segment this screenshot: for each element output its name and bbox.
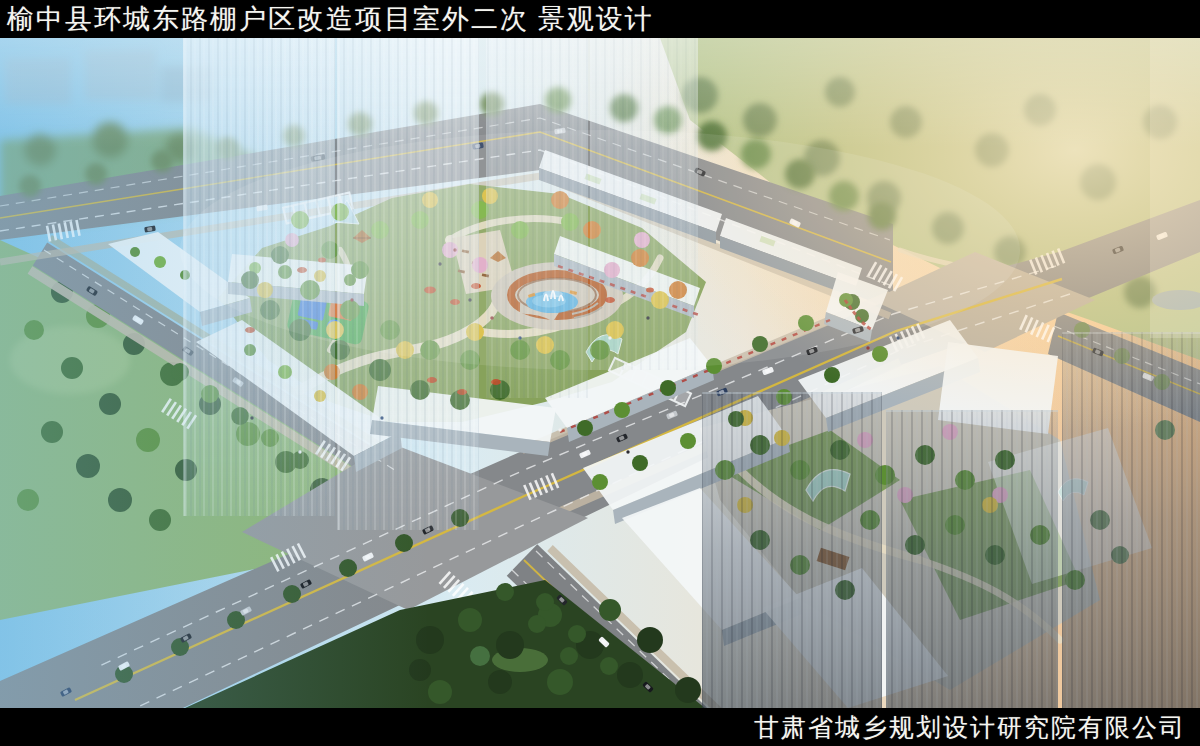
title-bar: 榆中县环城东路棚户区改造项目室外二次 景观设计	[0, 0, 1200, 38]
company-name: 甘肃省城乡规划设计研究院有限公司	[754, 711, 1200, 744]
page-title: 榆中县环城东路棚户区改造项目室外二次 景观设计	[0, 1, 654, 37]
ghost-tower	[702, 392, 882, 708]
rendering-area	[0, 38, 1200, 708]
poster: 榆中县环城东路棚户区改造项目室外二次 景观设计	[0, 0, 1200, 746]
rendering-canvas	[0, 38, 1200, 708]
ghost-tower	[886, 410, 1058, 708]
credit-bar: 甘肃省城乡规划设计研究院有限公司	[0, 708, 1200, 746]
